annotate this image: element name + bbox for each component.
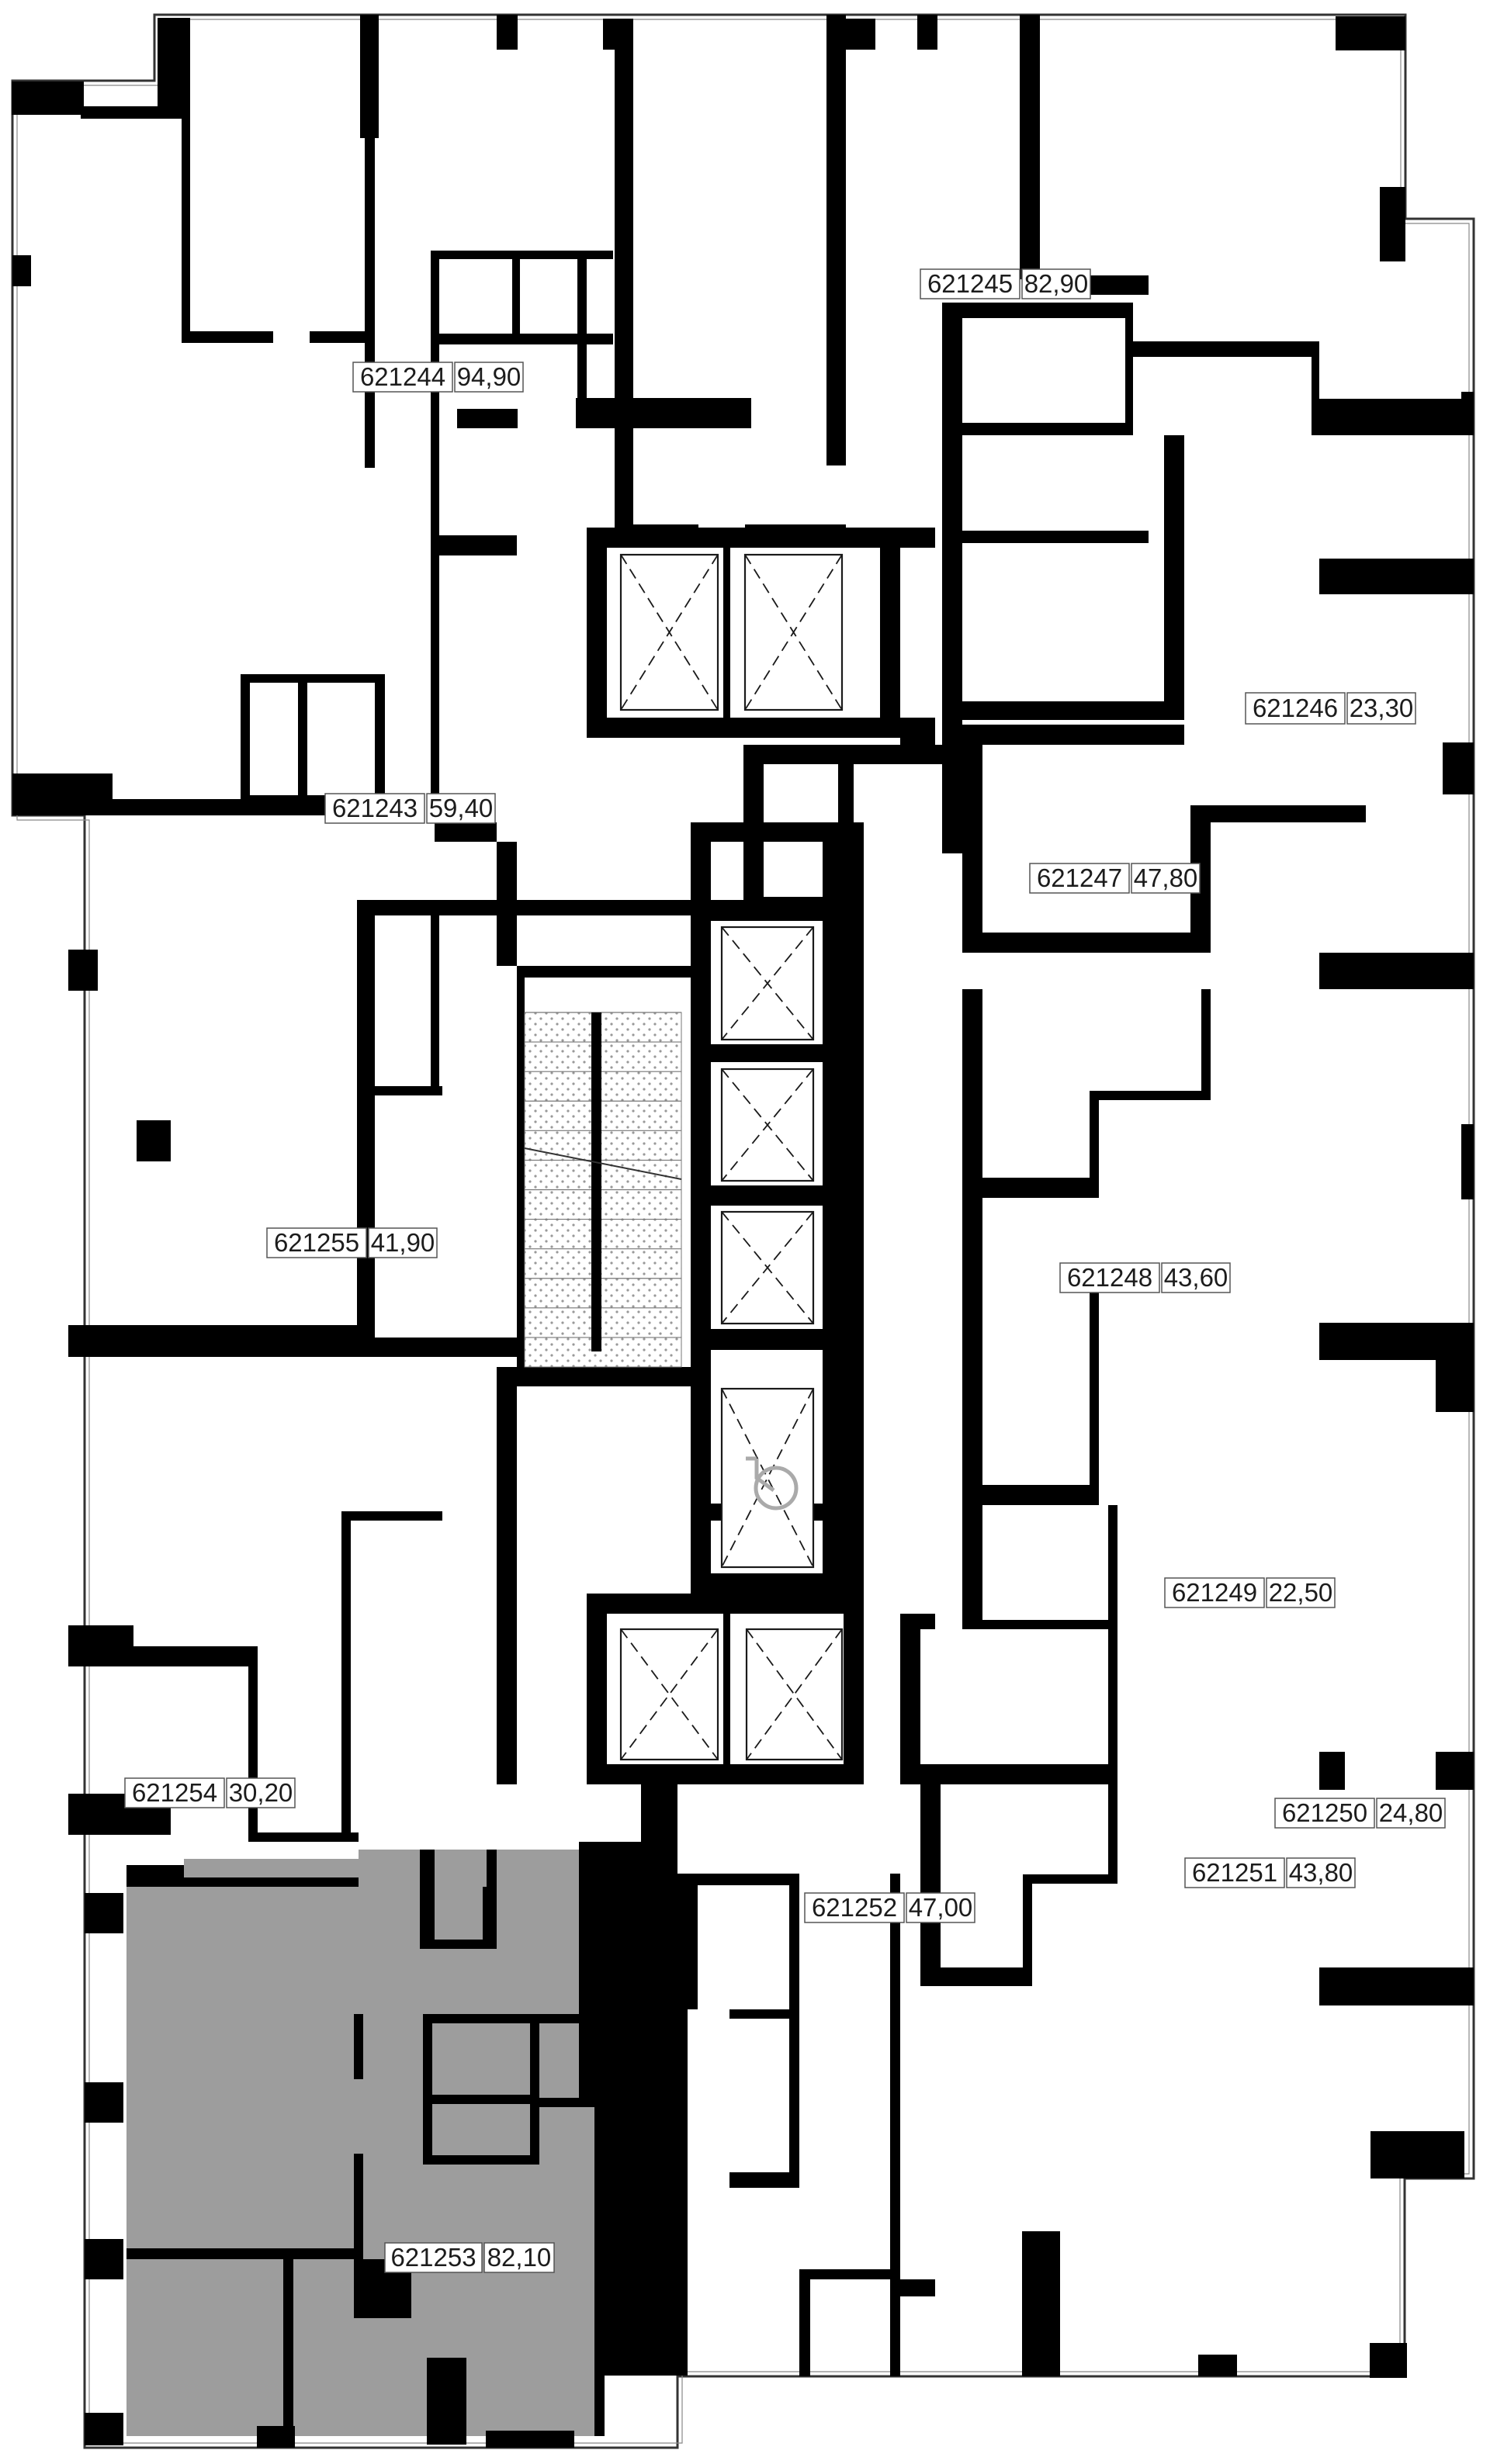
svg-text:23,30: 23,30 (1350, 694, 1414, 722)
svg-text:82,10: 82,10 (487, 2243, 552, 2272)
svg-text:621251: 621251 (1192, 1858, 1277, 1887)
svg-text:47,00: 47,00 (909, 1893, 973, 1922)
svg-text:621252: 621252 (812, 1893, 897, 1922)
svg-text:621248: 621248 (1067, 1263, 1152, 1292)
svg-text:621246: 621246 (1253, 694, 1338, 722)
svg-text:43,60: 43,60 (1164, 1263, 1228, 1292)
svg-text:22,50: 22,50 (1269, 1578, 1333, 1607)
svg-text:621247: 621247 (1037, 863, 1122, 892)
svg-text:82,90: 82,90 (1024, 269, 1089, 298)
svg-text:621244: 621244 (360, 362, 445, 391)
svg-text:621253: 621253 (390, 2243, 476, 2272)
svg-text:621243: 621243 (332, 794, 418, 822)
svg-text:41,90: 41,90 (371, 1228, 435, 1257)
svg-text:59,40: 59,40 (429, 794, 494, 822)
svg-text:621255: 621255 (274, 1228, 359, 1257)
svg-text:621254: 621254 (132, 1778, 217, 1807)
svg-text:47,80: 47,80 (1134, 863, 1198, 892)
svg-text:30,20: 30,20 (229, 1778, 293, 1807)
svg-text:94,90: 94,90 (457, 362, 521, 391)
svg-text:621250: 621250 (1282, 1798, 1367, 1827)
svg-text:621249: 621249 (1172, 1578, 1257, 1607)
svg-text:24,80: 24,80 (1379, 1798, 1443, 1827)
svg-text:621245: 621245 (927, 269, 1013, 298)
svg-text:43,80: 43,80 (1289, 1858, 1353, 1887)
